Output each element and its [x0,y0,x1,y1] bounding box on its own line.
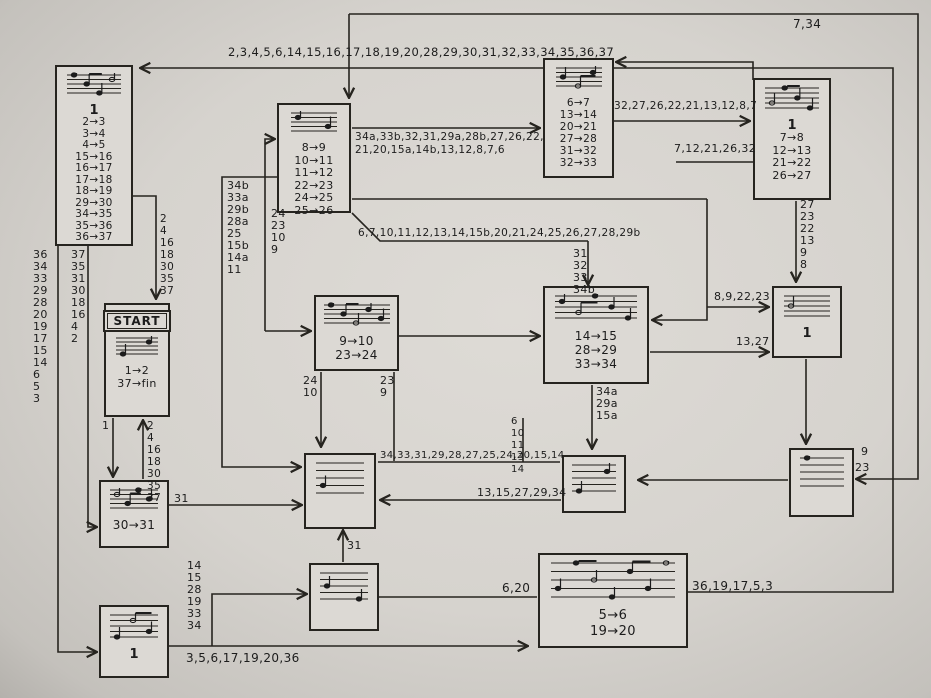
label-start-out: 1 [102,420,109,432]
list-line: 24→25 [294,192,333,205]
transition-list: 30→31 [113,519,156,532]
list-line: 2 [147,420,161,432]
transition-list: 5→619→20 [590,608,636,640]
label-l-out: 31 [174,493,189,505]
paper-sheet: 1 2→33→44→515→1616→1717→1818→1929→3034→3… [0,0,931,698]
music-staff-icon [289,110,339,140]
list-line: 1→2 [117,365,157,378]
wire-into-g-right [654,199,707,320]
list-line: 31→32 [560,145,598,157]
pattern-box-low-mid [562,455,626,513]
list-line: 6 [511,416,525,428]
label-b-to-g: 6,7,10,11,12,13,14,15b,20,21,24,25,26,27… [358,227,641,239]
music-staff-icon [549,560,677,606]
wire-top-outer [349,14,918,479]
label-m-in-column: 141528193334 [187,560,202,632]
list-line: 30 [147,468,161,480]
label-i-out: 34,33,31,29,28,27,25,24,20,15,14 [380,450,565,462]
list-line: 15a [596,410,618,422]
list-line: 8 [800,259,815,271]
list-line: 9→10 [335,334,378,348]
label-h-in-lower: 13,27 [736,336,770,348]
pattern-box-bottom-big: 5→619→20 [538,553,688,648]
label-o-to-n: 3,5,6,17,19,20,36 [186,652,300,664]
music-staff-icon [553,293,639,327]
label-h-in-upper: 8,9,22,23 [714,291,770,303]
label-g-out-column: 34a29a15a [596,386,618,422]
label-m-to-n: 6,20 [502,582,530,594]
label-k-in-bottom: 23 [855,462,870,474]
list-line: 21→22 [772,157,811,170]
list-line: 25→26 [294,205,333,218]
list-line: 32→33 [560,157,598,169]
music-staff-icon [782,293,832,325]
music-staff-icon [554,65,604,95]
label-mid-column: 610111314 [511,416,525,476]
label-n-out: 36,19,17,5,3 [692,580,773,592]
list-line: 23→24 [335,348,378,362]
list-line: 18→19 [75,186,113,198]
transition-list: 9→1023→24 [335,334,378,362]
label-left-outer-column: 36343329282019171514653 [33,249,48,405]
music-staff-icon [65,72,123,102]
label-b-to-g-column: 31323334b [573,248,595,296]
label-j-to-i: 13,15,27,29,34 [477,487,567,499]
transition-list: 1→237→fin [117,365,157,390]
list-line: 8→9 [294,142,333,155]
list-line: 11→12 [294,167,333,180]
transition-list: 8→910→1111→1222→2324→2525→26 [294,142,333,217]
transition-list: 2→33→44→515→1616→1717→1818→1929→3034→353… [75,117,113,244]
list-line: 14→15 [575,329,618,343]
pattern-box-top-left: 1 2→33→44→515→1616→1717→1818→1929→3034→3… [55,65,133,246]
pattern-box-top-mid: 6→713→1420→2127→2831→3232→33 [543,58,614,178]
list-line: 2 [160,213,174,225]
label-d-in: 7,12,21,26,32 [674,143,756,155]
list-line: 7→8 [772,132,811,145]
list-line: 13→14 [560,109,598,121]
wire-a-to-l [88,246,95,527]
pattern-box-low-right [789,448,854,517]
list-line: 4 [160,225,174,237]
label-d-to-h-column: 2723221398 [800,199,815,271]
label-c-to-d: 32,27,26,22,21,13,12,8,7 [614,100,757,112]
list-line: 20→21 [560,121,598,133]
list-line: 18 [147,456,161,468]
list-line: 37 [147,492,161,504]
transition-list: 14→1528→2933→34 [575,329,618,371]
pattern-box-top-center: 8→910→1111→1222→2324→2525→26 [277,103,351,213]
list-line: 4→5 [75,140,113,152]
pattern-box-bottom-left: 1 [99,605,169,678]
list-line: 9 [380,387,395,399]
list-line: 16 [160,237,174,249]
label-f-right-column: 239 [380,375,395,399]
pattern-number: 1 [129,648,138,661]
label-b-to-c-1: 34a,33b,32,31,29a,28b,27,26,22, [355,131,544,143]
list-line: 3 [33,393,48,405]
label-start-bottom-column: 241618303537 [147,420,161,504]
list-line: 18 [160,249,174,261]
music-staff-icon [318,570,370,608]
list-line: 10 [511,428,525,440]
list-line: 35 [147,480,161,492]
list-line: 37→fin [117,378,157,391]
list-line: 28→29 [575,343,618,357]
music-staff-icon [114,335,160,363]
list-line: 37 [160,285,174,297]
list-line: 34 [187,620,202,632]
list-line: 30 [160,261,174,273]
list-line: 11 [227,264,249,276]
start-badge: START [103,310,170,332]
list-line: 9 [271,244,286,256]
transition-list: 6→713→1420→2127→2831→3232→33 [560,97,598,169]
list-line: 19→20 [590,624,636,640]
label-b-to-c-2: 21,20,15a,14b,13,12,8,7,6 [355,144,505,156]
list-line: 36→37 [75,232,113,244]
pattern-box-center-low [304,453,376,529]
pattern-box-top-right: 1 7→812→1321→2226→27 [753,78,831,200]
label-start-top-column: 241618303537 [160,213,174,297]
list-line: 16→17 [75,163,113,175]
pattern-box-right-mid: 1 [772,286,842,358]
list-line: 30→31 [113,519,156,532]
list-line: 34b [573,284,595,296]
pattern-box-center: 9→1023→24 [314,295,399,371]
list-line: 34→35 [75,209,113,221]
music-staff-icon [322,302,392,332]
label-left-inner-column: 37353130181642 [71,249,86,345]
list-line: 33→34 [575,357,618,371]
list-line: 14 [511,464,525,476]
label-corner-note: 7,34 [793,18,821,30]
list-line: 35 [160,273,174,285]
wire-into-m [212,594,305,646]
label-b-left-column: 2423109 [271,208,286,256]
music-staff-icon [314,460,366,502]
list-line: 6→7 [560,97,598,109]
list-line: 2→3 [75,117,113,129]
list-line: 2 [71,333,86,345]
list-line: 27→28 [560,133,598,145]
label-f-left-column: 2410 [303,375,318,399]
list-line: 5→6 [590,608,636,624]
list-line: 26→27 [772,170,811,183]
list-line: 4 [147,432,161,444]
list-line: 16 [147,444,161,456]
transition-list: 7→812→1321→2226→27 [772,132,811,182]
pattern-box-bottom-mid [309,563,379,631]
wire-into-start-top [133,196,156,297]
label-top-loop: 2,3,4,5,6,14,15,16,17,18,19,20,28,29,30,… [228,46,614,58]
music-staff-icon [798,455,846,495]
label-m-up: 31 [347,540,362,552]
music-staff-icon [570,462,618,500]
pattern-number: 1 [802,327,811,340]
start-label: START [107,313,166,329]
start-box: START 1→237→fin [104,303,170,417]
list-line: 10 [303,387,318,399]
label-ab-column: 34b33a29b28a2515b14a11 [227,180,249,276]
label-k-in-top: 9 [861,446,868,458]
pattern-box-mid-right: 14→1528→2933→34 [543,286,649,384]
wire-into-c-top [618,62,753,80]
music-staff-icon [108,612,160,646]
music-staff-icon [763,85,821,117]
